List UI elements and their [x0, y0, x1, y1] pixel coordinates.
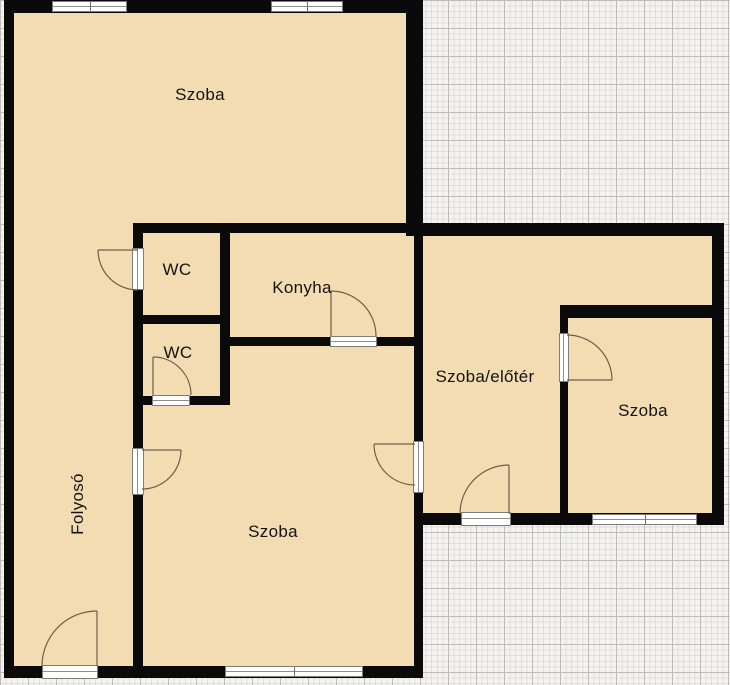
door-sill-folyoso-szoba: [132, 448, 144, 495]
wall-top-szoba-right: [406, 0, 423, 236]
room-label-szoba-top: Szoba: [175, 85, 225, 105]
window-top-middle: [271, 1, 343, 12]
wall-wc-upper-bottom: [143, 315, 230, 324]
window-top-left: [52, 1, 127, 12]
door-sill-wc-upper: [132, 248, 144, 290]
door-sill-eloter-szoba: [413, 441, 424, 493]
door-sill-folyoso-entrance: [42, 665, 98, 679]
door-sill-eloter-entrance: [461, 512, 511, 526]
window-bottom-szoba: [225, 666, 363, 677]
wall-outer-left: [4, 0, 14, 678]
room-label-szoba-right: Szoba: [618, 401, 668, 421]
wall-mid-horizontal: [133, 223, 423, 233]
door-sill-szoba-right: [559, 333, 569, 382]
room-label-folyoso: Folyosó: [68, 473, 88, 535]
wall-wc-right: [220, 223, 230, 405]
wall-right-block-right: [712, 223, 724, 525]
room-label-szoba-bottom: Szoba: [248, 522, 298, 542]
room-label-wc-lower: WC: [164, 343, 193, 363]
wall-szoba-right-top: [560, 305, 724, 318]
window-szoba-right: [592, 514, 697, 525]
floor-plan: Szoba WC Konyha WC Folyosó Szoba Szoba/e…: [0, 0, 730, 685]
room-label-szoba-eloter: Szoba/előtér: [435, 367, 534, 387]
room-label-wc-upper: WC: [163, 260, 192, 280]
door-sill-konyha: [330, 336, 377, 347]
room-label-konyha: Konyha: [272, 278, 331, 298]
wall-right-block-top: [406, 223, 724, 236]
door-sill-wc-lower: [152, 395, 190, 406]
wall-konyha-bottom: [220, 337, 423, 346]
